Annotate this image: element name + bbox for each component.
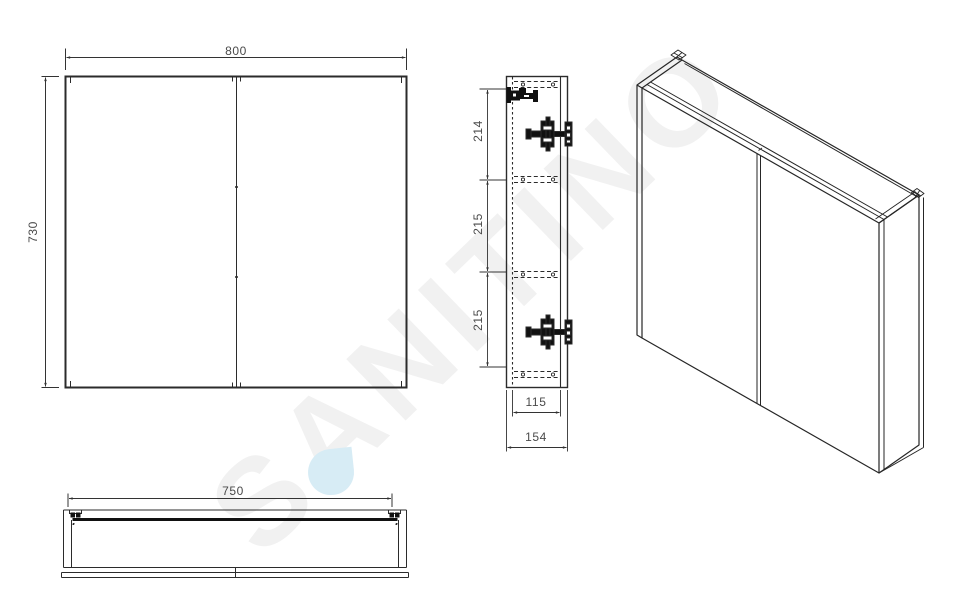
iso-right-face — [879, 195, 919, 473]
dim-label-front-width: 800 — [225, 44, 247, 58]
front-view-hinge-dot — [235, 276, 238, 279]
side-view-outline — [507, 77, 568, 388]
cabinet-drawing — [0, 0, 960, 607]
iso-right-door-edge — [879, 198, 924, 474]
iso-right-cap-notch — [876, 189, 925, 220]
front-height-dimension — [42, 77, 60, 388]
iso-top-face — [642, 60, 919, 223]
dim-label-outer-depth: 154 — [525, 430, 547, 444]
isometric-view — [637, 50, 924, 473]
iso-door-divider — [757, 154, 761, 406]
dim-label-hinge-segment-3: 215 — [471, 309, 485, 331]
front-view — [42, 49, 407, 388]
top-view-hinge-blocks — [70, 510, 401, 525]
top-view-back-rail — [62, 568, 409, 578]
iso-left-panel-edge — [637, 57, 682, 338]
dim-label-hinge-segment-2: 215 — [471, 213, 485, 235]
dim-label-hinge-segment-1: 214 — [471, 120, 485, 142]
top-view-side-walls-inner — [72, 520, 399, 567]
front-view-hinge-dot — [235, 186, 238, 189]
dim-label-inner-depth: 115 — [526, 395, 547, 409]
technical-drawing-canvas: SANITINO — [0, 0, 960, 607]
wall-bracket-hardware — [507, 87, 539, 103]
top-view — [62, 494, 409, 578]
dim-label-top-width: 750 — [222, 484, 244, 498]
dim-label-front-height: 730 — [26, 221, 40, 243]
iso-top-inner-lines — [647, 64, 917, 220]
